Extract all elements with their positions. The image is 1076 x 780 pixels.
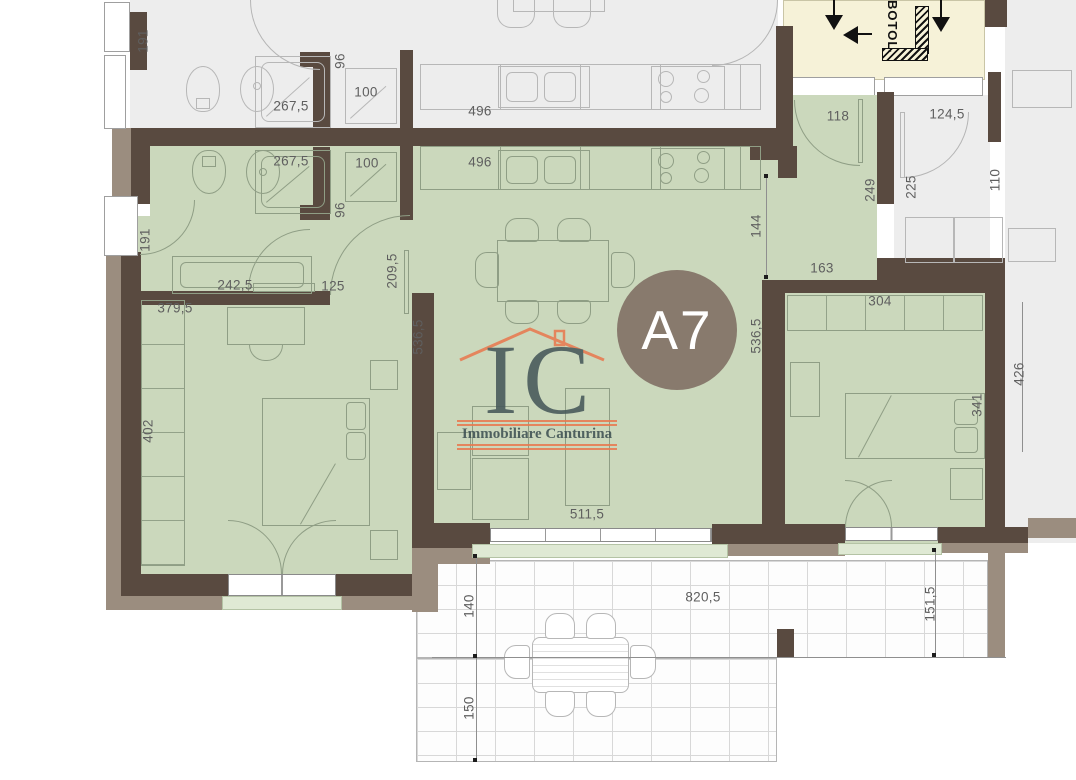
sofa-icon — [472, 458, 529, 520]
down-arrow-icon — [932, 17, 950, 32]
dimension-label: 267,5 — [273, 99, 308, 114]
dimension-dot — [932, 653, 936, 657]
dimension-dot — [473, 758, 477, 762]
dimension-label: 151,5 — [923, 586, 938, 621]
pillow-icon — [954, 427, 978, 453]
wall-segment — [336, 574, 413, 596]
dimension-label: 125 — [321, 279, 344, 294]
outdoor-chair-icon — [504, 645, 530, 679]
pillow-icon — [346, 432, 366, 460]
wall-segment — [120, 574, 228, 596]
door-lintel — [884, 77, 983, 96]
logo-divider — [457, 444, 617, 446]
arrow-stem — [857, 33, 872, 35]
dimension-line — [766, 176, 767, 278]
cabinet-icon — [954, 217, 1003, 263]
cabinet-icon — [905, 217, 954, 263]
desk-icon — [227, 307, 305, 345]
dimension-label: 242,5 — [217, 278, 252, 293]
dimension-label: 341 — [970, 393, 985, 416]
stove-burner-icon — [694, 88, 709, 103]
door-leaf — [858, 99, 863, 163]
dining-table-icon — [497, 240, 609, 302]
stove-burner-icon — [697, 70, 710, 83]
dresser-icon — [790, 362, 820, 417]
dimension-label: 150 — [462, 696, 477, 719]
kitchen-sink-icon — [506, 72, 538, 102]
dimension-label: 511,5 — [570, 507, 604, 522]
outer-wall — [1028, 518, 1076, 538]
stair-hatch-icon — [915, 6, 929, 54]
dimension-dot — [932, 548, 936, 552]
nightstand-icon — [370, 530, 398, 560]
wall-segment — [985, 293, 1005, 543]
sliding-door — [404, 250, 409, 314]
kitchen-sink-icon — [506, 156, 538, 184]
dimension-label: 191 — [138, 228, 153, 251]
outdoor-chair-icon — [586, 691, 616, 717]
dimension-line — [432, 657, 1006, 658]
chair-icon — [557, 218, 591, 242]
wall-segment — [762, 280, 785, 543]
door-recess — [104, 2, 130, 52]
wall-segment — [877, 258, 1005, 293]
down-arrow-icon — [825, 15, 843, 30]
terrace-wall — [988, 553, 1005, 657]
stove-burner-icon — [697, 151, 710, 164]
wall-segment — [762, 280, 877, 293]
wall-segment — [988, 72, 1001, 142]
dimension-line — [476, 557, 477, 762]
logo-divider — [457, 448, 617, 450]
left-arrow-icon — [843, 26, 858, 44]
outdoor-chair-icon — [545, 613, 575, 639]
logo-monogram: IC — [484, 340, 596, 420]
dimension-label: 100 — [354, 85, 377, 100]
dimension-label: 163 — [810, 261, 833, 276]
dimension-label: 820,5 — [685, 590, 720, 605]
outer-wall — [106, 200, 121, 596]
window-sill — [838, 543, 942, 555]
nightstand-icon — [950, 468, 983, 500]
dimension-label: 209,5 — [385, 253, 400, 288]
window-bedroom-2 — [845, 527, 938, 541]
wall-segment — [877, 92, 894, 204]
chair-icon — [553, 0, 591, 28]
window-sill — [472, 544, 728, 558]
outdoor-chair-icon — [545, 691, 575, 717]
stove-burner-icon — [658, 153, 674, 169]
agency-logo: IC Immobiliare Canturina — [452, 318, 622, 458]
wall-segment — [133, 128, 793, 146]
dimension-label: 496 — [468, 155, 491, 170]
dimension-label: 96 — [333, 53, 348, 69]
pillow-icon — [346, 402, 366, 430]
door-lintel — [789, 77, 875, 96]
wall-segment — [938, 527, 1028, 543]
cabinet-icon — [1012, 70, 1072, 108]
dimension-label: 144 — [749, 214, 764, 237]
terrace-tiles — [416, 560, 988, 658]
dimension-label: 402 — [141, 419, 156, 442]
nightstand-icon — [370, 360, 398, 390]
door-leaf — [900, 112, 905, 178]
dimension-label: 536,5 — [749, 318, 764, 353]
wall-segment — [130, 128, 150, 204]
window-living-room — [490, 528, 712, 542]
dimension-dot — [764, 275, 768, 279]
wall-segment — [712, 524, 845, 544]
dimension-label: 96 — [333, 202, 348, 218]
dimension-label: 100 — [355, 156, 378, 171]
toilet-icon — [196, 98, 210, 109]
wall-segment — [779, 30, 792, 77]
unit-badge-label: A7 — [641, 298, 712, 362]
terrace-pillar — [777, 629, 794, 658]
outdoor-chair-icon — [586, 613, 616, 639]
dimension-label: 118 — [827, 109, 849, 124]
outer-wall — [938, 543, 1028, 553]
closet-icon — [1008, 228, 1056, 262]
dimension-label: 110 — [988, 169, 1003, 191]
wall-segment — [778, 160, 797, 178]
logo-company-name: Immobiliare Canturina — [452, 426, 622, 443]
wall-segment — [400, 146, 413, 220]
stove-burner-icon — [694, 168, 709, 183]
dimension-label: 140 — [462, 594, 477, 617]
chair-icon — [505, 218, 539, 242]
window-bedroom-1 — [228, 574, 336, 596]
stove-burner-icon — [660, 172, 672, 184]
dimension-label: 191 — [136, 29, 151, 52]
outer-wall — [716, 544, 845, 556]
stove-burner-icon — [660, 91, 672, 103]
unit-badge: A7 — [617, 270, 737, 390]
toilet-icon — [202, 156, 216, 167]
dimension-label: 249 — [863, 178, 878, 201]
dimension-label: 124,5 — [929, 107, 964, 122]
stairwell-hatch-label: BOTOLA — [880, 0, 900, 52]
outer-wall — [112, 128, 131, 202]
logo-divider — [457, 420, 617, 422]
floor-plan-canvas: BOTOLA — [0, 0, 1076, 780]
dimension-dot — [764, 174, 768, 178]
chair-icon — [475, 252, 499, 288]
dimension-dot — [473, 654, 477, 658]
wall-segment — [400, 50, 413, 128]
window-sill — [222, 596, 342, 610]
kitchen-sink-icon — [544, 156, 576, 184]
dimension-label: 379,5 — [157, 301, 192, 316]
stove-burner-icon — [658, 71, 674, 87]
chair-icon — [611, 252, 635, 288]
dimension-label: 496 — [468, 104, 491, 119]
outdoor-chair-icon — [630, 645, 656, 679]
outdoor-table-icon — [532, 637, 629, 693]
dimension-label: 426 — [1012, 362, 1027, 385]
dimension-label: 536,5 — [411, 319, 426, 354]
entry-door-recess — [104, 196, 138, 256]
kitchen-sink-icon — [544, 72, 576, 102]
dimension-label: 267,5 — [273, 154, 308, 169]
wall-segment — [985, 0, 1007, 27]
dimension-label: 225 — [904, 175, 919, 198]
window — [104, 55, 126, 129]
dimension-label: 304 — [868, 294, 891, 309]
dimension-dot — [473, 554, 477, 558]
chair-icon — [497, 0, 535, 28]
